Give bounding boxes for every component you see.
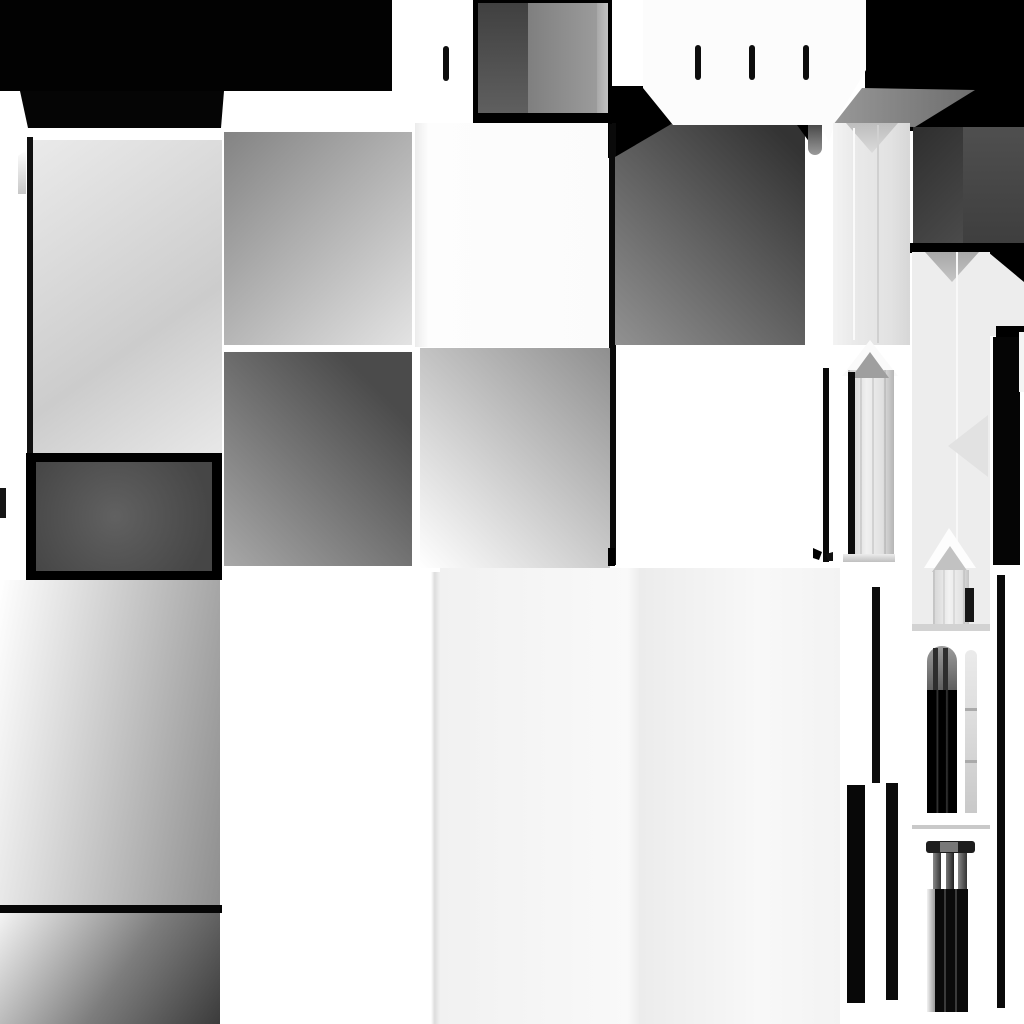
tick-2 bbox=[749, 45, 755, 80]
mark-center bbox=[608, 548, 615, 566]
darkbox-right-face bbox=[963, 127, 1024, 245]
capital-separator bbox=[912, 825, 990, 829]
framed-box-inner bbox=[36, 462, 212, 571]
center-black-line bbox=[609, 123, 616, 565]
bottom-bar-right bbox=[886, 783, 898, 1000]
panel-a bbox=[33, 140, 222, 455]
panel-e bbox=[224, 132, 412, 345]
graybox-bevel bbox=[597, 3, 608, 113]
darkbox-left-face bbox=[913, 127, 963, 245]
window2-dark-rect bbox=[965, 588, 974, 622]
window2-base bbox=[912, 624, 990, 631]
column2 bbox=[912, 252, 990, 562]
big-light-panel-edge bbox=[431, 572, 440, 1024]
window2-recess bbox=[933, 570, 969, 626]
panel-f bbox=[224, 352, 412, 566]
graybox-left-face bbox=[478, 3, 528, 113]
panel-h bbox=[420, 348, 610, 568]
top-black-hood bbox=[20, 91, 224, 128]
right-white-sliver bbox=[1019, 332, 1024, 392]
column1-seam-right bbox=[877, 125, 879, 343]
capital1-column-seg1 bbox=[965, 708, 977, 711]
capital2-post2 bbox=[946, 853, 954, 889]
thin-bar bbox=[872, 587, 880, 783]
gray-tab bbox=[808, 125, 822, 155]
bottom-bar-left bbox=[847, 785, 865, 1003]
column1 bbox=[833, 123, 910, 345]
capital1-cap-stripe1 bbox=[933, 648, 938, 690]
panel-g bbox=[415, 123, 608, 347]
capital2-seam2 bbox=[955, 889, 957, 1012]
left-sliver bbox=[18, 150, 26, 194]
texture-atlas-canvas bbox=[0, 0, 1024, 1024]
right-black-strip bbox=[993, 337, 1020, 565]
capital2-bar-mid bbox=[940, 842, 958, 852]
mark-right-a bbox=[813, 548, 822, 560]
capital1-body bbox=[927, 690, 957, 813]
capital2-post1 bbox=[933, 853, 941, 889]
window1-base bbox=[843, 554, 895, 562]
capital1-cap-stripe2 bbox=[943, 648, 948, 690]
top-black-band bbox=[0, 0, 392, 91]
big-light-panel bbox=[440, 568, 840, 1024]
tick-3 bbox=[803, 45, 809, 80]
panel-c bbox=[0, 580, 220, 905]
right-long-line bbox=[997, 575, 1005, 1008]
panel-i bbox=[615, 123, 805, 345]
tick-4 bbox=[443, 46, 449, 81]
window1-black-line bbox=[848, 372, 855, 558]
column2-seam bbox=[956, 252, 958, 562]
capital1-cap bbox=[927, 646, 957, 690]
capital1-light-column bbox=[965, 650, 977, 813]
window1-left-black-strip bbox=[823, 368, 829, 562]
capital1-column-seg2 bbox=[965, 760, 977, 763]
capital2-post3 bbox=[958, 853, 967, 889]
graybox-right-face bbox=[528, 3, 597, 113]
panel-d bbox=[0, 913, 220, 1024]
capital2-left-strip bbox=[927, 889, 935, 1012]
capital2-seam1 bbox=[944, 889, 946, 1012]
panel-divider-line bbox=[0, 905, 222, 913]
left-edge-bar bbox=[0, 488, 6, 518]
column1-seam-left bbox=[853, 128, 855, 340]
tick-1 bbox=[695, 45, 701, 80]
